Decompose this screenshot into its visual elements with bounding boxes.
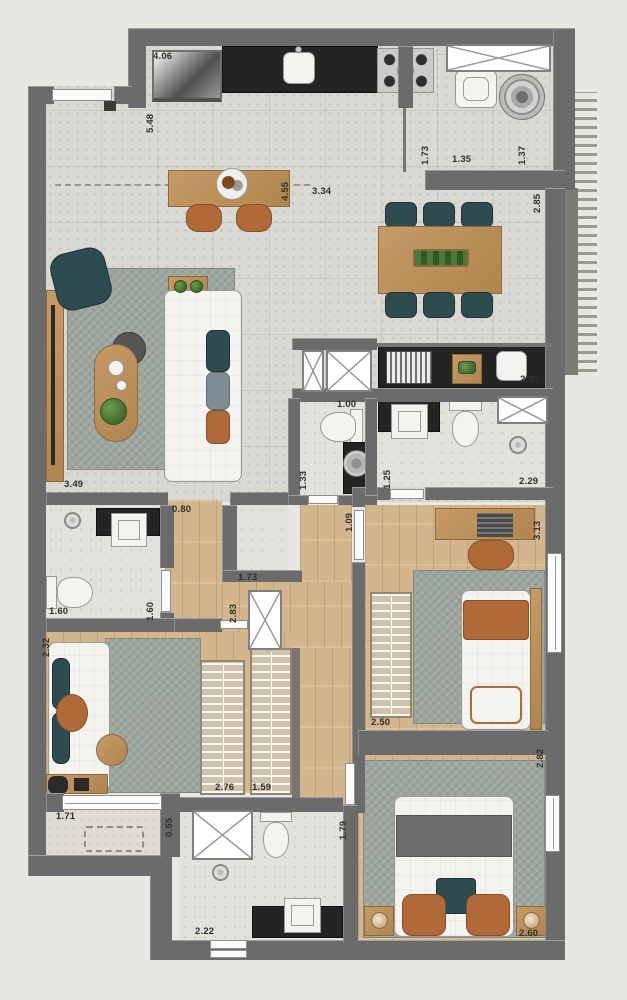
dimension-label: 2.82 — [536, 749, 546, 768]
dimension-label: 1.59 — [252, 783, 271, 793]
dimension-label: 2.33 — [520, 375, 539, 385]
dimension-label: 1.71 — [56, 812, 75, 822]
dimension-label: 1.37 — [518, 146, 528, 165]
dimension-label: 5.48 — [146, 114, 156, 133]
dimension-label: 2.83 — [229, 604, 239, 623]
dimension-label: 0.55 — [165, 818, 175, 837]
dimension-label: 1.73 — [421, 146, 431, 165]
dimension-label: 1.60 — [146, 602, 156, 621]
dimension-label: 1.25 — [383, 470, 393, 489]
dimension-label: 2.85 — [533, 194, 543, 213]
dimension-label: 2.50 — [371, 718, 390, 728]
dimension-label: 3.13 — [533, 521, 543, 540]
dimension-label: 3.34 — [312, 187, 331, 197]
dimension-label: 0.80 — [172, 505, 191, 515]
dimension-label: 1.09 — [345, 513, 355, 532]
dimension-label: 4.55 — [281, 182, 291, 201]
dimension-label: 2.76 — [215, 783, 234, 793]
dimension-label: 1.73 — [238, 573, 257, 583]
dimension-label: 1.79 — [339, 821, 349, 840]
dimension-label: 2.29 — [519, 477, 538, 487]
dimension-label: 1.35 — [452, 155, 471, 165]
dimension-label: 2.60 — [519, 929, 538, 939]
floor-plan: 4.065.484.553.341.731.351.372.852.333.49… — [0, 0, 627, 1000]
dimension-label: 2.22 — [195, 927, 214, 937]
dimension-label: 2.32 — [42, 638, 52, 657]
dimension-label: 4.06 — [153, 52, 172, 62]
dimension-labels-layer: 4.065.484.553.341.731.351.372.852.333.49… — [0, 0, 627, 1000]
dimension-label: 3.49 — [64, 480, 83, 490]
dimension-label: 1.33 — [299, 471, 309, 490]
dimension-label: 1.00 — [337, 400, 356, 410]
dimension-label: 1.60 — [49, 607, 68, 617]
